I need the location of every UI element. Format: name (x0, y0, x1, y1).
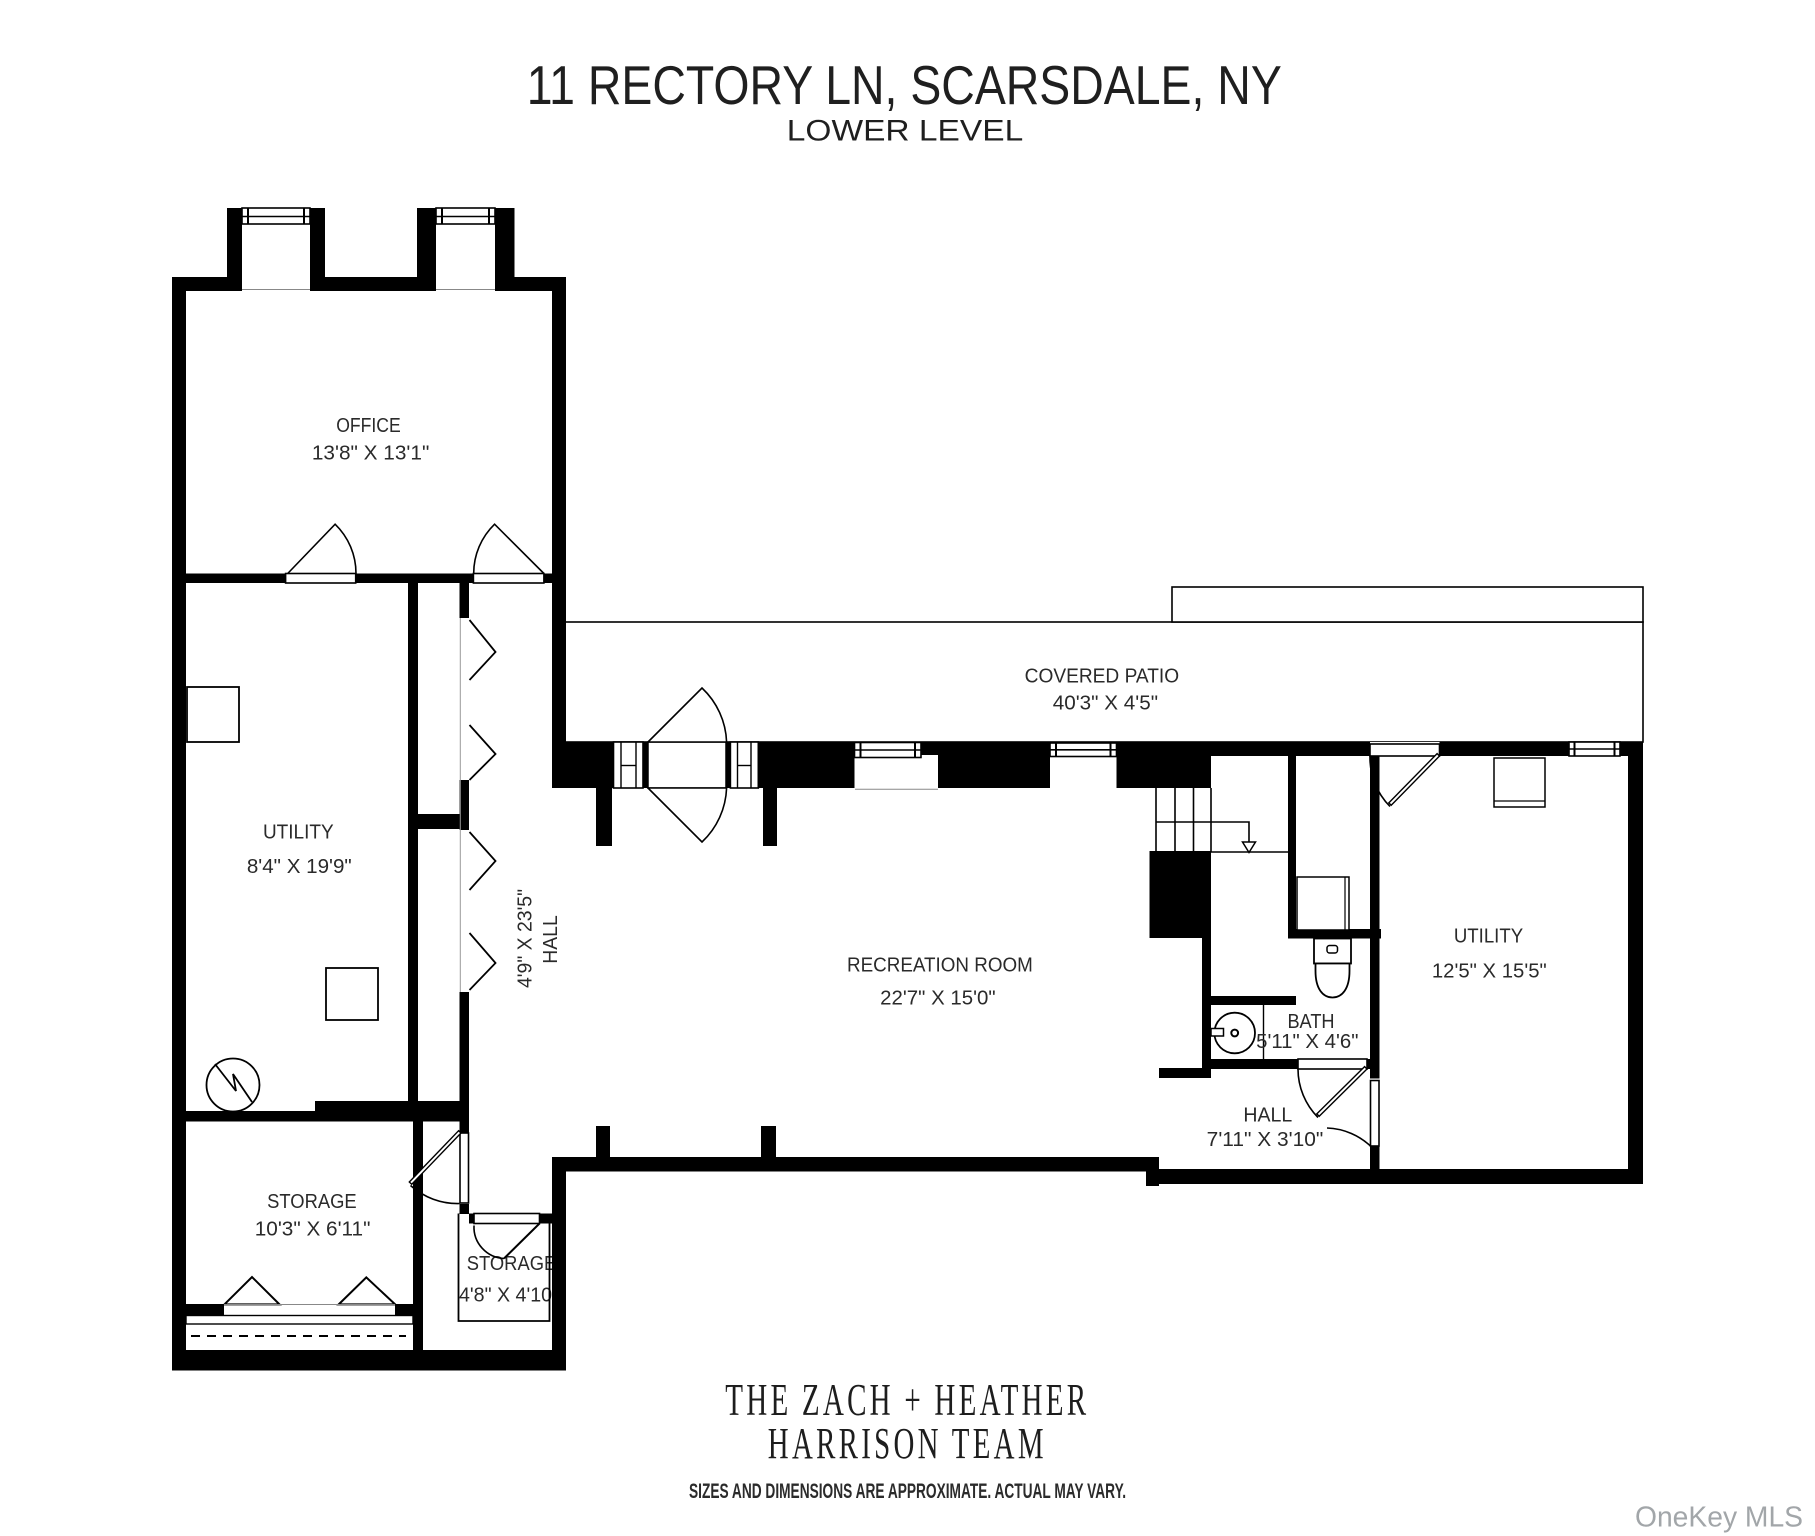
svg-text:RECREATION ROOM: RECREATION ROOM (847, 954, 1033, 976)
svg-text:LOWER LEVEL: LOWER LEVEL (787, 115, 1024, 148)
svg-text:STORAGE: STORAGE (467, 1253, 557, 1275)
svg-text:THE ZACH + HEATHER: THE ZACH + HEATHER (725, 1375, 1089, 1425)
svg-text:OneKey MLS: OneKey MLS (1635, 1502, 1803, 1534)
svg-text:4'8" X 4'10": 4'8" X 4'10" (459, 1285, 559, 1307)
svg-text:HARRISON TEAM: HARRISON TEAM (768, 1419, 1047, 1468)
svg-text:40'3" X 4'5": 40'3" X 4'5" (1053, 692, 1158, 714)
svg-text:COVERED PATIO: COVERED PATIO (1025, 665, 1180, 687)
svg-text:HALL: HALL (540, 915, 562, 964)
svg-text:5'11" X 4'6": 5'11" X 4'6" (1256, 1031, 1358, 1053)
svg-text:13'8" X 13'1": 13'8" X 13'1" (312, 442, 430, 464)
svg-text:7'11" X 3'10": 7'11" X 3'10" (1207, 1129, 1324, 1151)
svg-text:BATH: BATH (1287, 1011, 1334, 1033)
svg-text:OFFICE: OFFICE (336, 415, 401, 437)
svg-text:UTILITY: UTILITY (263, 822, 334, 844)
svg-text:UTILITY: UTILITY (1454, 925, 1523, 947)
svg-text:4'9" X 23'5": 4'9" X 23'5" (515, 889, 537, 988)
svg-text:STORAGE: STORAGE (267, 1191, 357, 1213)
svg-text:10'3" X 6'11": 10'3" X 6'11" (255, 1219, 371, 1241)
svg-text:SIZES AND DIMENSIONS ARE APPRO: SIZES AND DIMENSIONS ARE APPROXIMATE. AC… (689, 1480, 1126, 1503)
svg-text:8'4" X 19'9": 8'4" X 19'9" (247, 856, 352, 878)
svg-text:12'5" X 15'5": 12'5" X 15'5" (1432, 961, 1547, 983)
svg-text:22'7" X 15'0": 22'7" X 15'0" (880, 988, 995, 1010)
svg-text:11 RECTORY LN, SCARSDALE, NY: 11 RECTORY LN, SCARSDALE, NY (527, 55, 1282, 116)
svg-text:HALL: HALL (1243, 1104, 1292, 1126)
